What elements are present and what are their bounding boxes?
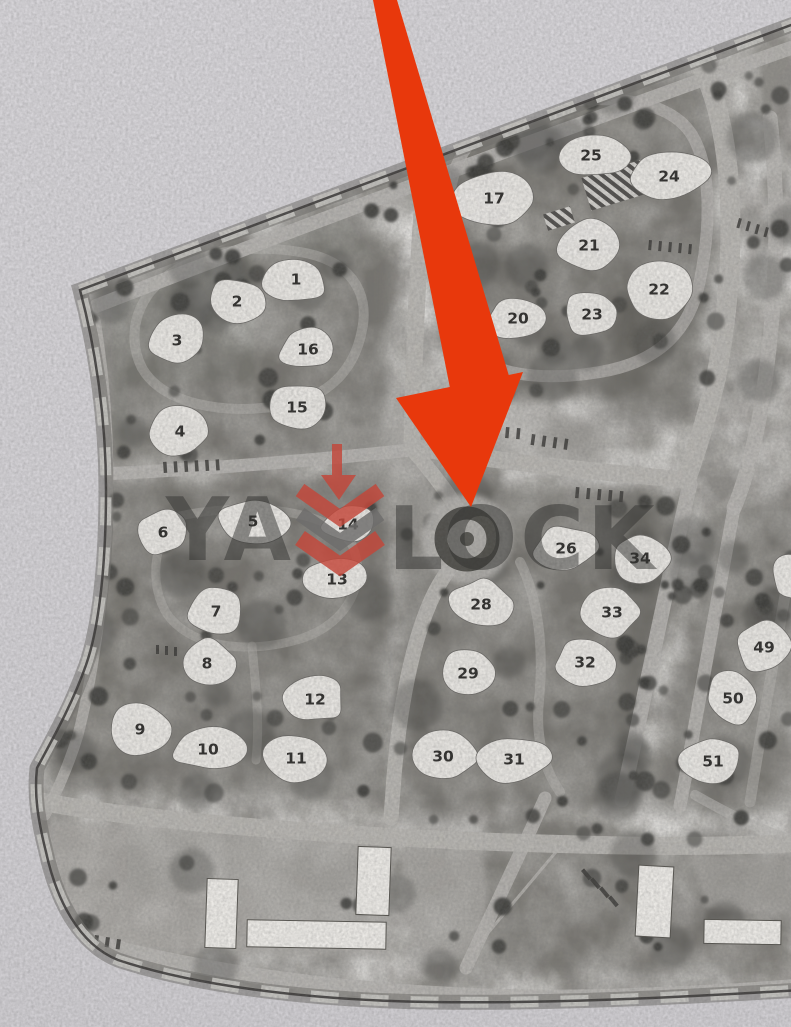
site-plan-photo: 1231615417252421202322651413789101211263…	[0, 0, 791, 1027]
photo-grain	[0, 0, 791, 1027]
site-plan-svg: 1231615417252421202322651413789101211263…	[0, 0, 791, 1027]
